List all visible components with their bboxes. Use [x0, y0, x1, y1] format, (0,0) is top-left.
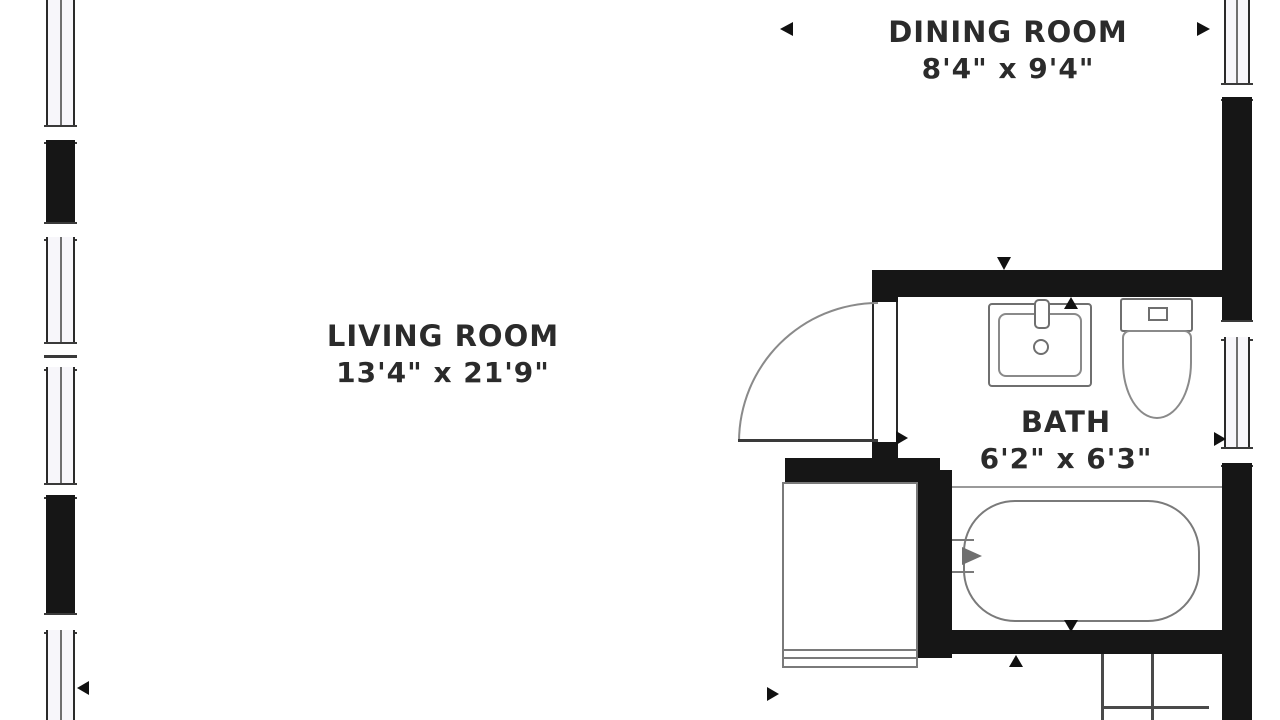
closet-shelf-line — [1101, 654, 1104, 720]
floor-plan: DINING ROOM 8'4" x 9'4" LIVING ROOM 13'4… — [0, 0, 1280, 720]
left-wall-segment — [46, 495, 75, 613]
dining-room-label: DINING ROOM 8'4" x 9'4" — [848, 14, 1168, 88]
washer-dryer-icon — [782, 482, 918, 668]
bath-top-wall — [873, 270, 1232, 297]
window-icon — [46, 0, 75, 125]
bath-dimensions: 6'2" x 6'3" — [966, 440, 1166, 478]
washer-door-line — [784, 657, 916, 659]
washer-door-line — [784, 649, 916, 651]
tub-faucet-line — [952, 571, 974, 573]
tub-spout-icon — [962, 547, 982, 565]
arrow-up-icon — [1009, 655, 1023, 667]
window-icon — [1224, 0, 1250, 83]
closet-shelf-line — [1101, 706, 1209, 709]
living-room-name: LIVING ROOM — [283, 318, 603, 354]
tub-faucet-line — [952, 539, 974, 541]
door-leaf-icon — [738, 439, 878, 442]
arrow-right-icon — [896, 431, 908, 445]
closet-top-wall — [785, 458, 940, 483]
arrow-right-icon — [1214, 432, 1226, 446]
window-icon — [46, 367, 75, 483]
bath-door-head-wall — [872, 270, 898, 302]
window-sill — [44, 342, 77, 357]
arrow-right-icon — [767, 687, 779, 701]
bathtub-icon — [963, 500, 1200, 622]
door-swing-arc-icon — [738, 302, 878, 442]
dining-room-dimensions: 8'4" x 9'4" — [848, 50, 1168, 88]
living-room-dimensions: 13'4" x 21'9" — [283, 354, 603, 392]
toilet-flush-button — [1148, 307, 1168, 321]
arrow-down-icon — [997, 257, 1011, 270]
right-wall-segment — [1222, 463, 1252, 720]
arrow-left-icon — [780, 22, 793, 36]
window-icon — [46, 630, 75, 720]
living-room-label: LIVING ROOM 13'4" x 21'9" — [283, 318, 603, 392]
arrow-up-icon — [1064, 297, 1078, 309]
window-icon — [1224, 337, 1250, 447]
closet-shelf-line — [1151, 654, 1154, 720]
window-icon — [46, 237, 75, 342]
bath-name: BATH — [966, 404, 1166, 440]
bath-bottom-wall — [918, 630, 1232, 654]
arrow-right-icon — [1197, 22, 1210, 36]
arrow-left-icon — [77, 681, 89, 695]
left-wall-segment — [46, 140, 75, 222]
sink-drain — [1033, 339, 1049, 355]
dining-room-name: DINING ROOM — [848, 14, 1168, 50]
bath-floor-line — [952, 486, 1222, 488]
bath-label: BATH 6'2" x 6'3" — [966, 404, 1166, 478]
arrow-down-icon — [1064, 620, 1078, 632]
sink-faucet — [1034, 299, 1050, 329]
